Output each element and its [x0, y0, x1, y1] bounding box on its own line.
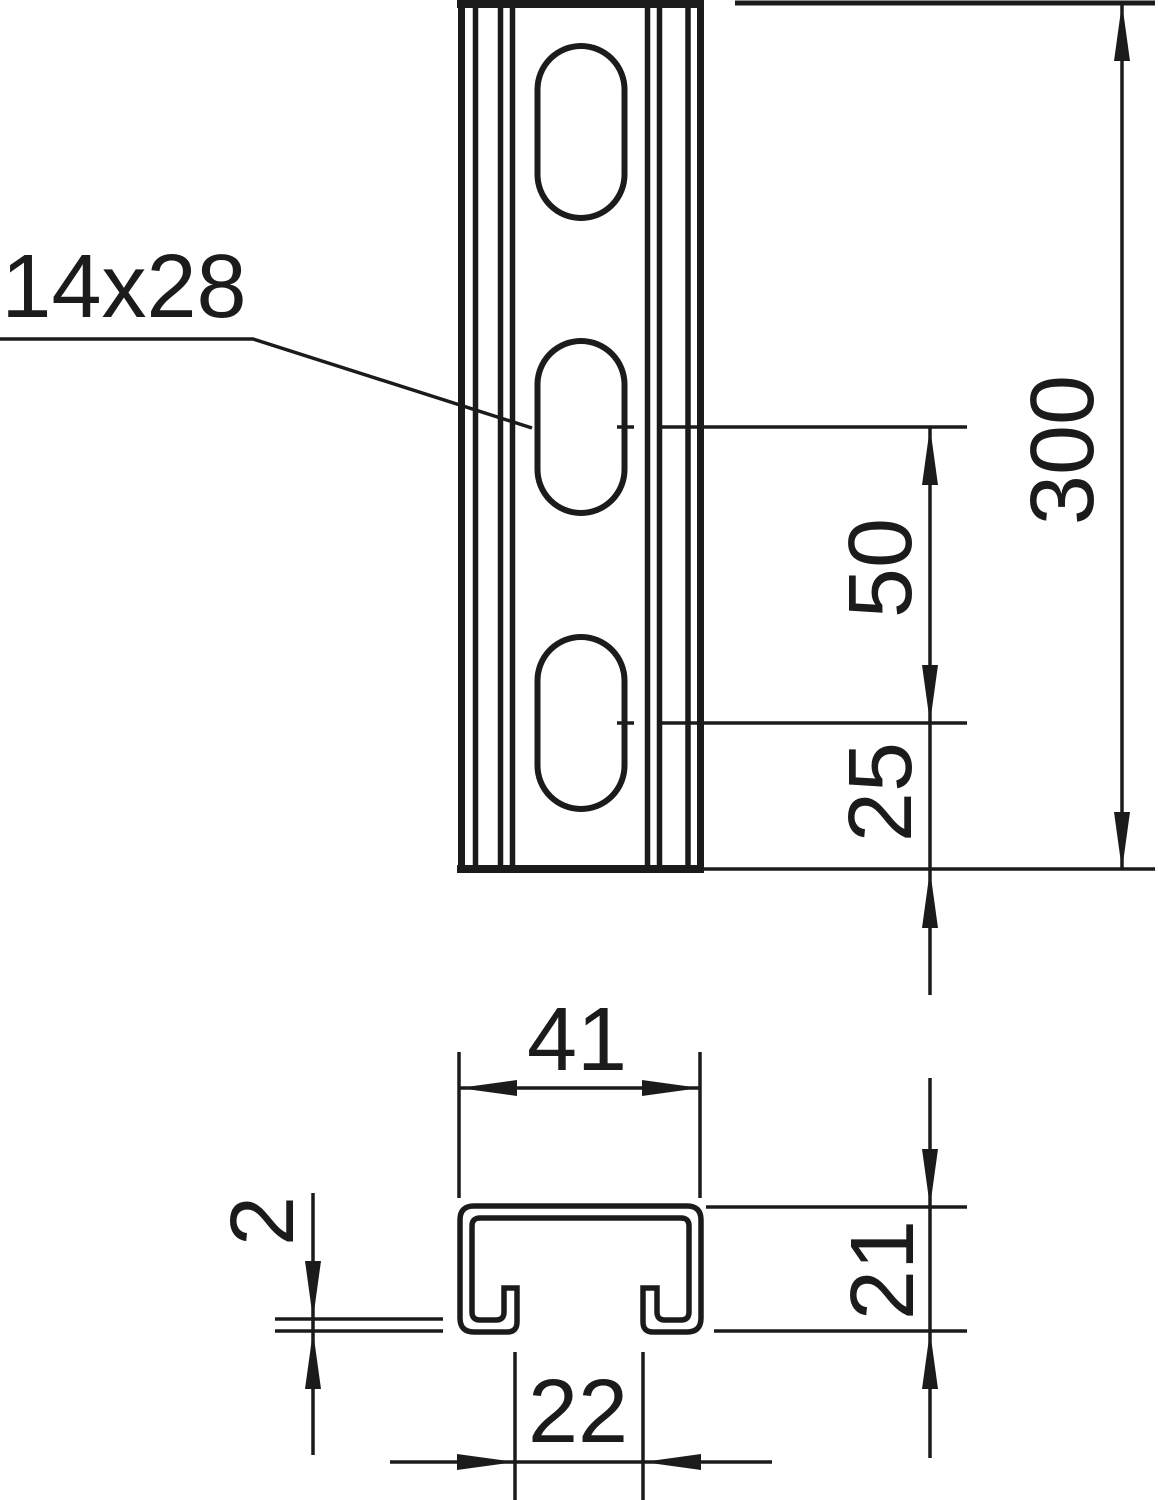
arrowhead-left [643, 1454, 701, 1470]
technical-drawing: 14x28 50 25 300 41 [0, 0, 1158, 1500]
slot-bottom [538, 637, 625, 809]
slot-pitch-label: 50 [831, 518, 931, 618]
profile-width-label: 41 [527, 990, 627, 1090]
end-distance-label: 25 [831, 742, 931, 842]
slot-size-leader-line [0, 339, 532, 428]
slot-size-label: 14x28 [1, 237, 246, 337]
arrowhead-down [1114, 812, 1130, 870]
arrowhead-up [305, 1331, 321, 1389]
total-length-label: 300 [1013, 375, 1113, 525]
arrowhead-up [922, 870, 938, 928]
slot-middle [538, 341, 625, 513]
cross-section-view: 41 21 2 22 [213, 990, 967, 1500]
profile-height-label: 21 [833, 1220, 933, 1320]
opening-width-label: 22 [528, 1362, 628, 1462]
profile-outline [460, 1206, 701, 1332]
arrowhead-right [642, 1080, 700, 1096]
arrowhead-up [922, 427, 938, 485]
thickness-label: 2 [213, 1196, 313, 1246]
arrowhead-down [305, 1261, 321, 1319]
arrowhead-up [922, 1331, 938, 1389]
drawing-canvas: 14x28 50 25 300 41 [0, 0, 1158, 1500]
front-view: 14x28 50 25 300 [0, 0, 1155, 995]
arrowhead-down [922, 1149, 938, 1207]
arrowhead-left [459, 1080, 517, 1096]
arrowhead-up [1114, 3, 1130, 61]
slot-top [538, 46, 625, 218]
arrowhead-down [922, 665, 938, 723]
arrowhead-right [457, 1454, 515, 1470]
